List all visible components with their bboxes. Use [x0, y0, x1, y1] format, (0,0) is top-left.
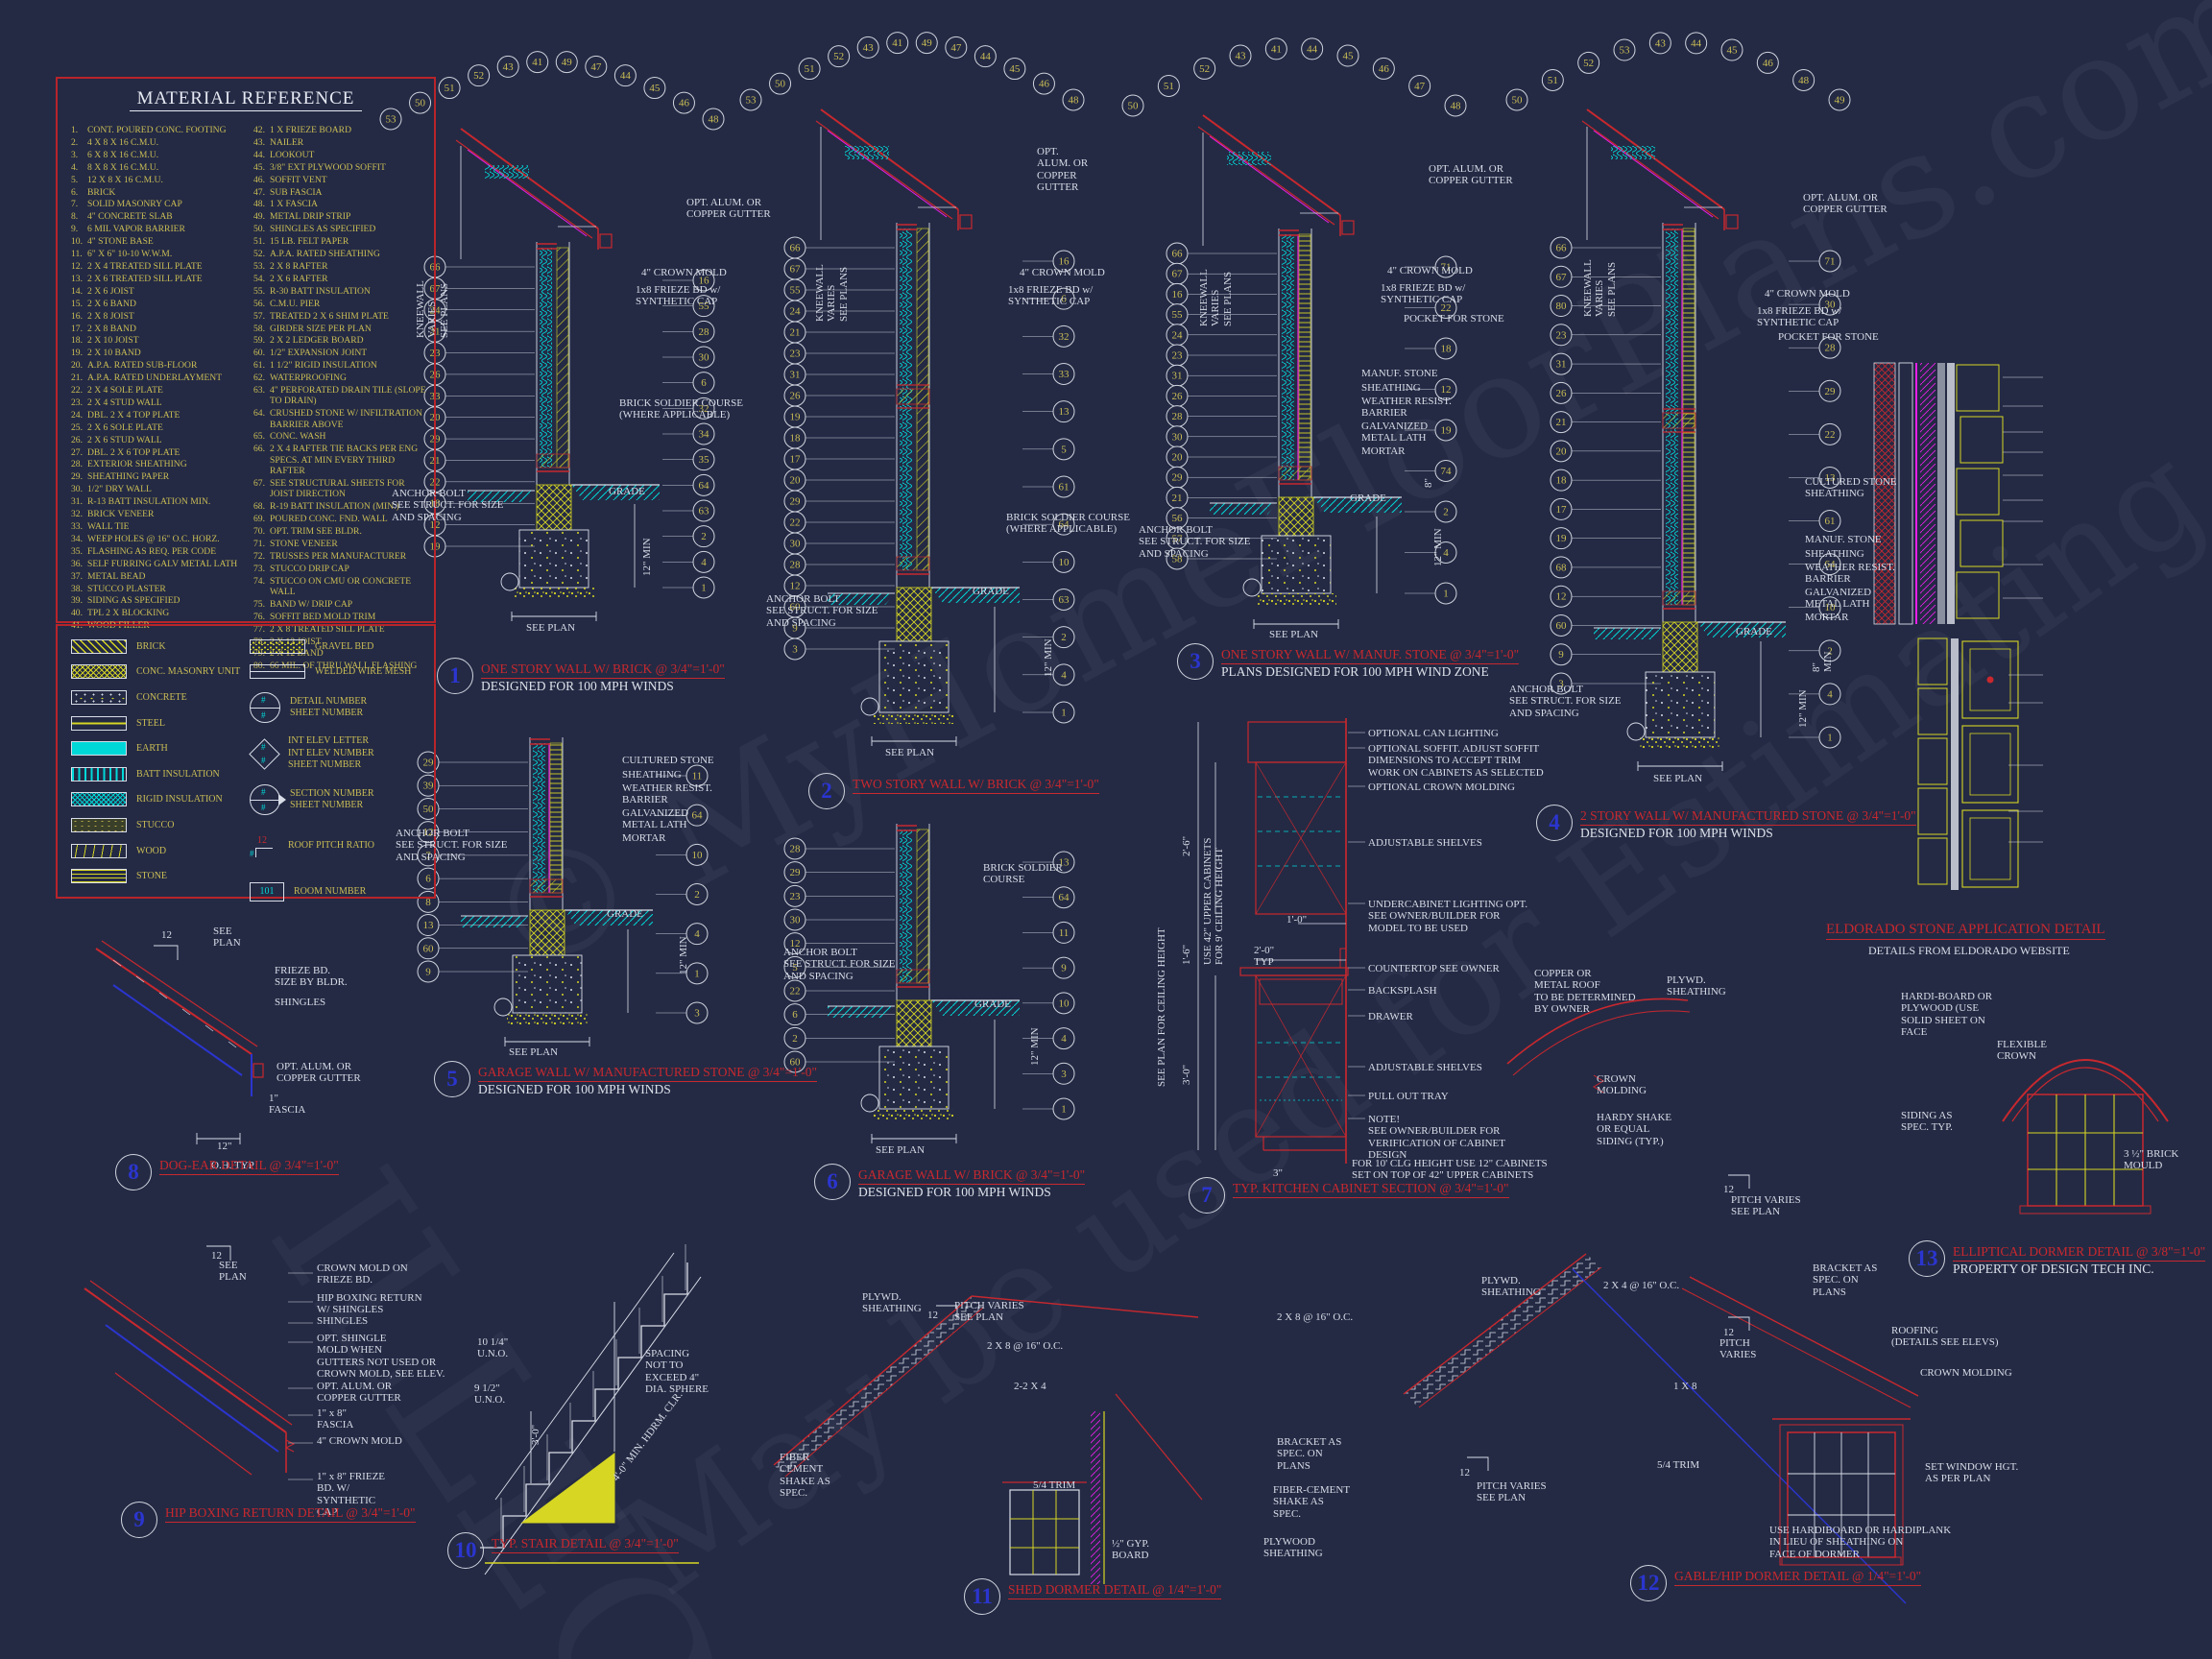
detail-title-block: 13 ELLIPTICAL DORMER DETAIL @ 3/8"=1'-0"…	[1909, 1240, 2205, 1277]
callout-number: 67	[790, 264, 802, 276]
hatch-swatch	[71, 767, 127, 781]
callout-number: 29	[1172, 472, 1184, 484]
callout-number: 19	[1556, 533, 1568, 544]
material-item: 59.2 X 2 LEDGER BOARD	[253, 335, 428, 346]
callout-number: 10	[692, 850, 704, 861]
detail-title: GARAGE WALL W/ MANUFACTURED STONE @ 3/4"…	[478, 1065, 817, 1082]
detail-title-block: 3 ONE STORY WALL W/ MANUF. STONE @ 3/4"=…	[1177, 643, 1519, 680]
callout-number: 67	[1172, 269, 1184, 280]
material-item: 52.A.P.A. RATED SHEATHING	[253, 249, 428, 259]
annotation-label: OPTIONAL SOFFIT. ADJUST SOFFIT DIMENSION…	[1368, 743, 1544, 779]
callout-number: 71	[1825, 256, 1836, 268]
callout-number: 32	[1059, 331, 1070, 343]
callout-number: 29	[790, 496, 802, 508]
detail-number-badge: 12	[1630, 1565, 1667, 1601]
callout-number: 2	[1061, 632, 1067, 643]
annotation-label: ROOFING (DETAILS SEE ELEVS)	[1891, 1325, 1999, 1349]
annotation-label: SEE PLAN	[885, 747, 934, 758]
annotation-label: CULTURED STONE SHEATHING	[1805, 476, 1897, 500]
annotation-label: BRACKET AS SPEC. ON PLANS	[1813, 1262, 1877, 1298]
hatch-label: STONE	[136, 871, 167, 881]
annotation-label: HARDY SHAKE OR EQUAL SIDING (TYP.)	[1597, 1112, 1671, 1147]
callout-number: 26	[1556, 388, 1568, 399]
material-item: 18.2 X 10 JOIST	[71, 335, 246, 346]
annotation-label: 1x8 FRIEZE BD w/ SYNTHETIC CAP	[1008, 284, 1093, 308]
annotation-label: HIP BOXING RETURN W/ SHINGLES	[317, 1292, 422, 1316]
legend-row: CONCRETE	[71, 685, 244, 710]
annotation-label: GRADE	[974, 998, 1011, 1010]
legend-row: GRAVEL BED	[250, 634, 428, 660]
annotation-label: KNEEWALL VARIES SEE PLANS	[814, 264, 850, 322]
hatch-swatch	[71, 869, 127, 883]
annotation-label: MORTAR	[1805, 612, 1849, 623]
annotation-label: 10 1/4" U.N.O.	[477, 1336, 508, 1360]
hatch-swatch	[71, 664, 127, 679]
material-item: 38.STUCCO PLASTER	[71, 584, 246, 594]
annotation-label: 2 X 4 @ 16" O.C.	[1603, 1280, 1679, 1291]
callout-number: 4	[1827, 688, 1833, 700]
callout-number: 55	[1172, 309, 1184, 321]
callout-number: 64	[692, 810, 704, 822]
annotation-label: FIBER CEMENT SHAKE AS SPEC.	[780, 1452, 830, 1499]
material-item: 1.CONT. POURED CONC. FOOTING	[71, 125, 246, 135]
annotation-label: MORTAR	[1361, 445, 1406, 457]
callout-number: 30	[790, 915, 802, 926]
callout-number: 18	[1441, 344, 1453, 355]
annotation-label: 1" x 8" FASCIA	[317, 1407, 353, 1431]
material-item: 19.2 X 10 BAND	[71, 348, 246, 358]
symbol-label: ROOM NUMBER	[294, 886, 366, 899]
callout-number: 19	[1441, 425, 1453, 437]
callout-number: 21	[1172, 493, 1183, 504]
annotation-label: ANCHOR BOLT SEE STRUCT. FOR SIZE AND SPA…	[783, 947, 896, 982]
callout-number: 23	[1556, 329, 1568, 341]
annotation-label: FRIEZE BD. SIZE BY BLDR.	[275, 965, 348, 989]
material-item: 56.C.M.U. PIER	[253, 299, 428, 309]
material-item: 16.2 X 8 JOIST	[71, 311, 246, 322]
detail-title: TWO STORY WALL W/ BRICK @ 3/4"=1'-0"	[853, 777, 1099, 794]
callout-number: 80	[1556, 301, 1568, 312]
callout-number: 47	[1414, 81, 1426, 92]
annotation-label: NOTE! SEE OWNER/BUILDER FOR VERIFICATION…	[1368, 1114, 1505, 1161]
callout-number: 11	[1059, 927, 1070, 939]
hatch-label: WOOD	[136, 846, 166, 856]
annotation-label: USE HARDIBOARD OR HARDIPLANK IN LIEU OF …	[1769, 1525, 1951, 1560]
detail-title-block: 11 SHED DORMER DETAIL @ 1/4"=1'-0"	[964, 1578, 1221, 1615]
annotation-label: ADJUSTABLE SHELVES	[1368, 837, 1482, 849]
hatch-swatch	[71, 639, 127, 654]
annotation-label: PITCH VARIES SEE PLAN	[1477, 1480, 1547, 1504]
symbol-label: DETAIL NUMBERSHEET NUMBER	[290, 696, 367, 720]
callout-number: 46	[1379, 63, 1390, 75]
callout-number: 23	[790, 349, 802, 360]
callout-number: 53	[1620, 45, 1631, 57]
material-item: 25.2 X 6 SOLE PLATE	[71, 422, 246, 433]
material-item: 14.2 X 6 JOIST	[71, 286, 246, 297]
detail-title: ELLIPTICAL DORMER DETAIL @ 3/8"=1'-0"	[1953, 1244, 2205, 1262]
callout-number: 17	[790, 454, 802, 466]
hatch-label: CONC. MASONRY UNIT	[136, 666, 240, 677]
callout-number: 63	[1059, 594, 1070, 606]
symbol-label: SECTION NUMBERSHEET NUMBER	[290, 788, 374, 812]
material-item: 17.2 X 8 BAND	[71, 324, 246, 334]
annotation-label: KNEEWALL VARIES SEE PLANS	[1582, 259, 1618, 317]
detail-number-badge: 6	[814, 1164, 851, 1200]
material-item: 3.6 X 8 X 16 C.M.U.	[71, 150, 246, 160]
callout-number: 63	[699, 506, 710, 517]
material-item: 37.METAL BEAD	[71, 571, 246, 582]
hatch-swatch	[71, 690, 127, 705]
callout-number: 50	[1128, 101, 1140, 112]
detail-title-block: 5 GARAGE WALL W/ MANUFACTURED STONE @ 3/…	[434, 1061, 817, 1097]
annotation-label: 8" MIN	[1811, 652, 1835, 672]
annotation-label: UNDERCABINET LIGHTING OPT. SEE OWNER/BUI…	[1368, 899, 1527, 934]
detail-title: 2 STORY WALL W/ MANUFACTURED STONE @ 3/4…	[1580, 808, 1916, 826]
detail-title-block: 4 2 STORY WALL W/ MANUFACTURED STONE @ 3…	[1536, 805, 1916, 841]
annotation-label: SHEATHING	[1805, 548, 1864, 560]
detail-number-badge: 1	[437, 658, 473, 694]
annotation-label: 12" MIN	[1797, 689, 1809, 728]
annotation-label: 4" CROWN MOLD	[1765, 288, 1850, 300]
hatch-swatch	[71, 716, 127, 731]
detail-title-block: 1 ONE STORY WALL W/ BRICK @ 3/4"=1'-0" D…	[437, 658, 725, 694]
annotation-label: 5/4 TRIM	[1657, 1459, 1699, 1471]
callout-number: 28	[699, 326, 710, 338]
callout-number: 26	[790, 391, 802, 402]
legend-row: RIGID INSULATION	[71, 787, 244, 813]
callout-number: 31	[1172, 371, 1183, 382]
annotation-label: CROWN MOLDING	[1597, 1073, 1647, 1097]
annotation-label: OPT. SHINGLE MOLD WHEN GUTTERS NOT USED …	[317, 1333, 445, 1380]
callout-number: 51	[1548, 75, 1558, 86]
annotation-label: OPT. ALUM. OR COPPER GUTTER	[1803, 192, 1887, 216]
material-item: 55.R-30 BATT INSULATION	[253, 286, 428, 297]
annotation-label: PITCH VARIES SEE PLAN	[1731, 1194, 1801, 1218]
annotation-label: ANCHOR BOLT SEE STRUCT. FOR SIZE AND SPA…	[766, 593, 878, 629]
callout-number: 44	[980, 51, 992, 62]
hatch-swatch	[250, 639, 305, 654]
callout-number: 2	[1443, 507, 1449, 518]
material-item: 12.2 X 4 TREATED SILL PLATE	[71, 261, 246, 272]
symbol-label: INT ELEV LETTERINT ELEV NUMBERSHEET NUMB…	[288, 735, 374, 772]
callout-number: 28	[1172, 411, 1184, 422]
callout-number: 18	[1556, 475, 1568, 487]
annotation-label: 12	[927, 1310, 938, 1321]
callout-number: 64	[699, 480, 710, 492]
annotation-label: 1x8 FRIEZE BD w/ SYNTHETIC CAP	[1757, 305, 1841, 329]
legend-row: BRICK	[71, 634, 244, 660]
material-item: 4.8 X 8 X 16 C.M.U.	[71, 162, 246, 173]
material-item: 74.STUCCO ON CMU OR CONCRETE WALL	[253, 576, 428, 598]
annotation-label: GRADE	[973, 586, 1009, 597]
material-item: 75.BAND W/ DRIP CAP	[253, 599, 428, 610]
legend-row: WELDED WIRE MESH	[250, 660, 428, 685]
callout-number: 3	[694, 1008, 700, 1020]
cad-sheet: © MyHomeFloorPlans.com ILLEGAL May be us…	[0, 0, 2212, 1659]
callout-number: 48	[1798, 75, 1810, 86]
material-item: 20.A.P.A. RATED SUB-FLOOR	[71, 360, 246, 371]
callout-number: 49	[1835, 95, 1846, 107]
detail-note: PROPERTY OF DESIGN TECH INC.	[1953, 1262, 2205, 1277]
callout-number: 30	[1172, 431, 1184, 443]
annotation-label: SHINGLES	[317, 1315, 368, 1327]
material-item: 26.2 X 6 STUD WALL	[71, 435, 246, 445]
callout-number: 66	[1172, 249, 1184, 260]
detail-title-block: 10 TYP. STAIR DETAIL @ 3/4"=1'-0"	[447, 1532, 679, 1569]
annotation-label: OPTIONAL CAN LIGHTING	[1368, 728, 1499, 739]
hatch-label: GRAVEL BED	[315, 641, 373, 652]
material-item: 64.CRUSHED STONE W/ INFILTRATION BARRIER…	[253, 408, 428, 430]
callout-number: 41	[892, 37, 902, 49]
legend-symbol-row: 101ROOM NUMBER	[250, 869, 428, 915]
callout-number: 64	[1059, 892, 1070, 903]
callout-number: 68	[1556, 562, 1568, 573]
annotation-label: 3'-0"	[530, 1425, 541, 1445]
callout-number: 29	[790, 867, 802, 878]
material-item: 36.SELF FURRING GALV METAL LATH	[71, 559, 246, 569]
material-item: 2.4 X 8 X 16 C.M.U.	[71, 137, 246, 148]
material-item: 65.CONC. WASH	[253, 431, 428, 442]
annotation-label: 3 ½" BRICK MOULD	[2124, 1148, 2178, 1172]
symbol-label: ROOF PITCH RATIO	[288, 840, 374, 853]
annotation-label: FIBER-CEMENT SHAKE AS SPEC.	[1273, 1484, 1350, 1520]
callout-number: 51	[445, 83, 455, 94]
material-item: 44.LOOKOUT	[253, 150, 428, 160]
annotation-label: KNEEWALL VARIES SEE PLANS	[415, 280, 450, 338]
annotation-label: ADJUSTABLE SHELVES	[1368, 1062, 1482, 1073]
detail-title: ONE STORY WALL W/ MANUF. STONE @ 3/4"=1'…	[1221, 647, 1519, 664]
annotation-label: 12" MIN	[641, 538, 653, 576]
annotation-label: 5/4 TRIM	[1033, 1479, 1075, 1491]
annotation-label: PULL OUT TRAY	[1368, 1091, 1449, 1102]
material-item: 15.2 X 6 BAND	[71, 299, 246, 309]
material-item: 73.STUCCO DRIP CAP	[253, 564, 428, 574]
material-item: 51.15 LB. FELT PAPER	[253, 236, 428, 247]
annotation-label: 2'-0" TYP	[1254, 945, 1274, 969]
hatch-swatch	[250, 664, 305, 679]
callout-number: 51	[1164, 81, 1174, 92]
material-item: 49.METAL DRIP STRIP	[253, 211, 428, 222]
annotation-label: POCKET FOR STONE	[1404, 313, 1504, 325]
detail-title-block: 6 GARAGE WALL W/ BRICK @ 3/4"=1'-0" DESI…	[814, 1164, 1085, 1200]
material-item: 35.FLASHING AS REQ. PER CODE	[71, 546, 246, 557]
annotation-label: COPPER OR METAL ROOF TO BE DETERMINED BY…	[1534, 968, 1636, 1015]
callout-number: 56	[1172, 513, 1184, 524]
callout-number: 50	[775, 79, 786, 90]
callout-number: 48	[709, 114, 720, 126]
material-item: 31.R-13 BATT INSULATION MIN.	[71, 496, 246, 507]
callout-number: 10	[1059, 998, 1070, 1009]
callout-number: 67	[1556, 272, 1568, 283]
annotation-label: OPT. ALUM. OR COPPER GUTTER	[1429, 163, 1513, 187]
material-item: 60.1/2" EXPANSION JOINT	[253, 348, 428, 358]
detail-title-block: 2 TWO STORY WALL W/ BRICK @ 3/4"=1'-0"	[808, 773, 1099, 809]
annotation-label: SEE PLAN	[1653, 773, 1702, 784]
callout-number: 4	[694, 928, 700, 940]
callout-number: 2	[694, 889, 700, 901]
callout-number: 17	[1556, 504, 1568, 516]
callout-number: 2	[701, 531, 707, 542]
hatch-label: BATT INSULATION	[136, 769, 220, 780]
callout-number: 45	[1343, 51, 1355, 62]
material-item: 72.TRUSSES PER MANUFACTURER	[253, 551, 428, 562]
annotation-label: CROWN MOLDING	[1920, 1367, 2012, 1379]
callout-number: 28	[1825, 343, 1837, 354]
callout-number: 43	[1655, 37, 1667, 49]
annotation-label: BRICK SOLDIER COURSE (WHERE APPLICABLE)	[619, 397, 743, 421]
callout-number: 52	[1199, 63, 1210, 75]
annotation-label: SIDING AS SPEC. TYP.	[1901, 1110, 1953, 1134]
material-item: 27.DBL. 2 X 6 TOP PLATE	[71, 447, 246, 458]
callout-number: 11	[692, 771, 703, 782]
hatch-label: STUCCO	[136, 820, 174, 830]
hatch-swatch	[71, 792, 127, 806]
hatch-label: STEEL	[136, 718, 165, 729]
annotation-label: PLYWD. SHEATHING	[1667, 974, 1726, 998]
material-item: 40.TPL 2 X BLOCKING	[71, 608, 246, 618]
legend-row: BATT INSULATION	[71, 761, 244, 787]
callout-number: 16	[1059, 256, 1070, 268]
callout-number: 45	[1727, 45, 1739, 57]
annotation-label: SEE PLAN	[213, 926, 241, 950]
callout-number: 31	[1556, 359, 1567, 371]
annotation-label: 12	[161, 929, 172, 941]
detail-note: DESIGNED FOR 100 MPH WINDS	[858, 1185, 1085, 1200]
detail-title-block: 8 DOG-EAR DETAIL @ 3/4"=1'-0"	[115, 1154, 339, 1190]
callout-number: 20	[1172, 452, 1184, 464]
callout-number: 43	[503, 61, 515, 73]
callout-number: 47	[950, 42, 962, 54]
annotation-label: POCKET FOR STONE	[1778, 331, 1879, 343]
callout-number: 4	[701, 557, 707, 568]
callout-number: 5	[1061, 444, 1067, 455]
callout-number: 61	[1825, 516, 1836, 527]
legend-symbol-row: ##SECTION NUMBERSHEET NUMBER	[250, 777, 428, 823]
callout-number: 23	[1172, 350, 1184, 362]
material-item: 45.3/8" EXT PLYWOOD SOFFIT	[253, 162, 428, 173]
annotation-label: 12" MIN	[1029, 1027, 1041, 1066]
detail-number-badge: 10	[447, 1532, 484, 1569]
callout-number: 74	[1441, 466, 1453, 477]
detail-title: HIP BOXING RETURN DETAIL @ 3/4"=1'-0"	[165, 1505, 416, 1523]
callout-number: 30	[790, 539, 802, 550]
hatch-label: RIGID INSULATION	[136, 794, 223, 805]
callout-number: 41	[1271, 43, 1282, 55]
hatch-legend-left: BRICK CONC. MASONRY UNIT CONCRETE STEEL …	[71, 634, 244, 889]
annotation-label: BRACKET AS SPEC. ON PLANS	[1277, 1436, 1341, 1472]
legend-row: STONE	[71, 863, 244, 889]
annotation-label: 12" MIN	[678, 936, 689, 974]
detail-title-block: 7 TYP. KITCHEN CABINET SECTION @ 3/4"=1'…	[1189, 1177, 1509, 1214]
callout-number: 43	[1236, 51, 1247, 62]
annotation-label: MANUF. STONE	[1805, 534, 1882, 545]
annotation-label: 4" CROWN MOLD	[317, 1435, 402, 1447]
callout-number: 45	[649, 83, 661, 94]
callout-number: 43	[863, 42, 875, 54]
callout-number: 13	[1059, 406, 1070, 418]
annotation-label: BRICK SOLDIER COURSE (WHERE APPLICABLE)	[1006, 512, 1130, 536]
callout-number: 47	[590, 61, 602, 73]
material-item: 50.SHINGLES AS SPECIFIED	[253, 224, 428, 234]
material-item: 46.SOFFIT VENT	[253, 175, 428, 185]
annotation-label: CULTURED STONE	[622, 755, 714, 766]
annotation-label: 4" CROWN MOLD	[1020, 267, 1105, 278]
callout-number: 9	[1061, 963, 1067, 974]
callout-number: 10	[1059, 557, 1070, 568]
callout-number: 2	[792, 1033, 798, 1045]
callout-number: 61	[1059, 482, 1070, 493]
material-item: 61.1 1/2" RIGID INSULATION	[253, 360, 428, 371]
detail-note: DESIGNED FOR 100 MPH WINDS	[1580, 826, 1916, 841]
annotation-label: WEATHER RESIST. BARRIER	[1805, 562, 1895, 586]
annotation-label: PLYWOOD SHEATHING	[1263, 1536, 1323, 1560]
annotation-label: GRADE	[609, 486, 645, 497]
annotation-label: OPT. ALUM. OR COPPER GUTTER	[1037, 146, 1088, 193]
legend-row: STUCCO	[71, 812, 244, 838]
detail-number-badge: 5	[434, 1061, 470, 1097]
callout-number: 52	[473, 70, 484, 82]
callout-number: 22	[790, 986, 801, 998]
callout-number: 20	[790, 475, 802, 487]
hatch-label: CONCRETE	[136, 692, 187, 703]
detail-number-badge: 8	[115, 1154, 152, 1190]
material-item: 63.4" PERFORATED DRAIN TILE (SLOPE TO DR…	[253, 385, 428, 407]
callout-number: 4	[1061, 1033, 1067, 1045]
annotation-label: GRADE	[607, 908, 643, 920]
material-item: 23.2 X 4 STUD WALL	[71, 397, 246, 408]
annotation-label: ANCHOR BOLT SEE STRUCT. FOR SIZE AND SPA…	[392, 488, 504, 523]
callout-number: 60	[423, 943, 435, 954]
callout-number: 18	[790, 433, 802, 445]
material-item: 43.NAILER	[253, 137, 428, 148]
callout-number: 1	[1061, 1104, 1067, 1116]
detail-title: TYP. KITCHEN CABINET SECTION @ 3/4"=1'-0…	[1233, 1181, 1509, 1198]
annotation-label: PLYWD. SHEATHING	[862, 1291, 922, 1315]
material-item: 57.TREATED 2 X 6 SHIM PLATE	[253, 311, 428, 322]
annotation-label: 12"	[217, 1141, 232, 1152]
annotation-label: MORTAR	[622, 832, 666, 844]
material-item: 21.A.P.A. RATED UNDERLAYMENT	[71, 373, 246, 383]
material-item: 11.6" X 6" 10-10 W.W.M.	[71, 249, 246, 259]
annotation-label: USE 42" UPPER CABINETS FOR 9' CEILING HE…	[1202, 837, 1226, 965]
material-item: 48.1 X FASCIA	[253, 199, 428, 209]
detail-number-badge: 2	[808, 773, 845, 809]
eldorado-subtitle: DETAILS FROM ELDORADO WEBSITE	[1868, 945, 2070, 957]
hatch-label: BRICK	[136, 641, 166, 652]
annotation-label: 1 X 8	[1673, 1381, 1696, 1392]
annotation-label: SEE PLAN	[876, 1144, 925, 1156]
callout-number: 22	[790, 517, 801, 529]
material-item: 28.EXTERIOR SHEATHING	[71, 459, 246, 469]
hatch-label: WELDED WIRE MESH	[315, 666, 411, 677]
material-item: 7.SOLID MASONRY CAP	[71, 199, 246, 209]
callout-number: 41	[532, 57, 542, 68]
callout-number: 21	[790, 327, 801, 339]
detail-number-badge: 4	[1536, 805, 1573, 841]
annotation-label: 3'-0"	[1181, 1065, 1192, 1085]
detail-note: PLANS DESIGNED FOR 100 MPH WIND ZONE	[1221, 664, 1519, 680]
detail-title: SHED DORMER DETAIL @ 1/4"=1'-0"	[1008, 1582, 1221, 1599]
annotation-label: PLYWD. SHEATHING	[1481, 1275, 1541, 1299]
detail-number-badge: 9	[121, 1502, 157, 1538]
callout-number: 34	[699, 429, 710, 441]
annotation-label: SEE PLAN	[1269, 629, 1318, 640]
callout-number: 45	[1009, 63, 1021, 75]
callout-number: 9	[425, 967, 431, 978]
legend-row: STEEL	[71, 710, 244, 736]
callout-number: 29	[1825, 386, 1837, 397]
material-item: 66.2 X 4 RAFTER TIE BACKS PER ENG SPECS.…	[253, 444, 428, 476]
